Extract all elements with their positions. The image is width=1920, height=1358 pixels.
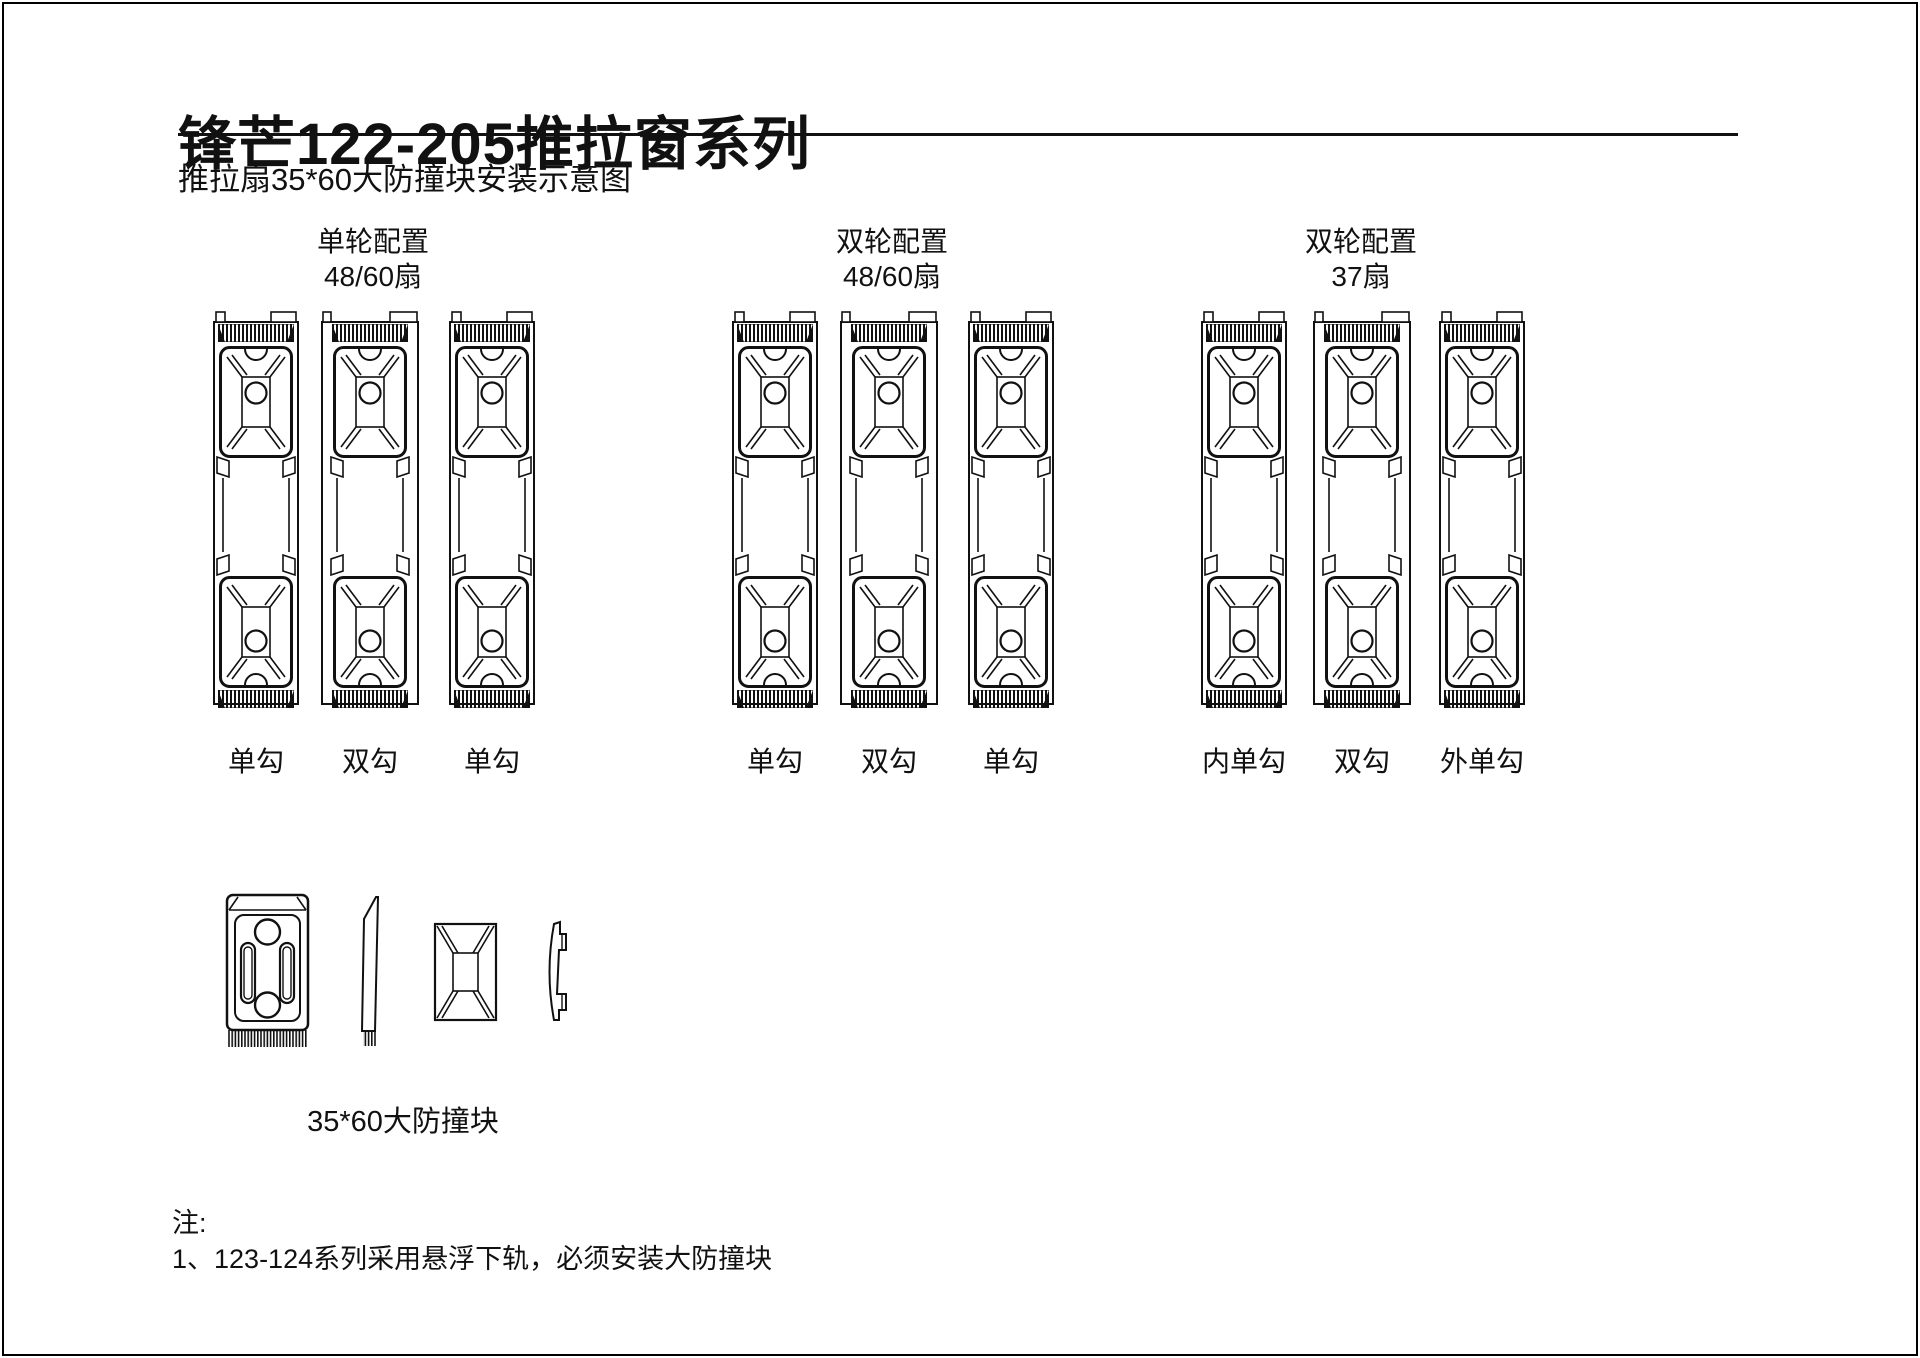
bumper-top-view-drawing [433,922,498,1022]
hook-type-label: 单勾 [967,740,1055,780]
profile-column: 双勾 [320,310,420,780]
hook-type-label: 内单勾 [1200,740,1288,780]
group-config-label: 单轮配置 [212,224,534,259]
hook-type-label: 外单勾 [1438,740,1526,780]
bumper-side-view-drawing [355,895,379,1047]
rail-profile-double-hook-drawing [839,310,939,715]
rail-profile-single-hook-drawing [967,310,1055,715]
profile-column: 双勾 [839,310,939,780]
profile-column: 单勾 [212,310,300,780]
notes-heading: 注: [172,1205,772,1241]
rail-profile-single-hook-drawing [448,310,536,715]
hook-type-label: 双勾 [320,740,420,780]
group-fan-label: 37扇 [1200,259,1522,294]
profile-column: 单勾 [448,310,536,780]
notes-block: 注: 1、123-124系列采用悬浮下轨，必须安装大防撞块 [172,1205,772,1277]
group-config-label: 双轮配置 [731,224,1053,259]
hook-type-label: 单勾 [448,740,536,780]
bumper-hook-view-drawing [540,920,568,1024]
group-fan-label: 48/60扇 [731,259,1053,294]
hook-type-label: 双勾 [1312,740,1412,780]
note-item: 1、123-124系列采用悬浮下轨，必须安装大防撞块 [172,1241,772,1277]
profile-column: 单勾 [967,310,1055,780]
rail-profile-double-hook-drawing [1312,310,1412,715]
profile-column: 外单勾 [1438,310,1526,780]
group-config-label: 双轮配置 [1200,224,1522,259]
hook-type-label: 单勾 [731,740,819,780]
rail-profile-double-hook-drawing [320,310,420,715]
profile-column: 单勾 [731,310,819,780]
rail-profile-single-hook-drawing [212,310,300,715]
hook-type-label: 单勾 [212,740,300,780]
profile-column: 双勾 [1312,310,1412,780]
hook-type-label: 双勾 [839,740,939,780]
bumper-component-label: 35*60大防撞块 [258,1098,548,1140]
group-header: 双轮配置 37扇 [1200,224,1522,294]
group-header: 单轮配置 48/60扇 [212,224,534,294]
rail-profile-single-hook-drawing [731,310,819,715]
profile-column: 内单勾 [1200,310,1288,780]
group-header: 双轮配置 48/60扇 [731,224,1053,294]
diagram-subtitle: 推拉扇35*60大防撞块安装示意图 [178,154,631,199]
rail-profile-inner-single-hook-drawing [1200,310,1288,715]
group-fan-label: 48/60扇 [212,259,534,294]
bumper-front-view-drawing [225,893,310,1051]
rail-profile-outer-single-hook-drawing [1438,310,1526,715]
title-underline [178,133,1738,136]
